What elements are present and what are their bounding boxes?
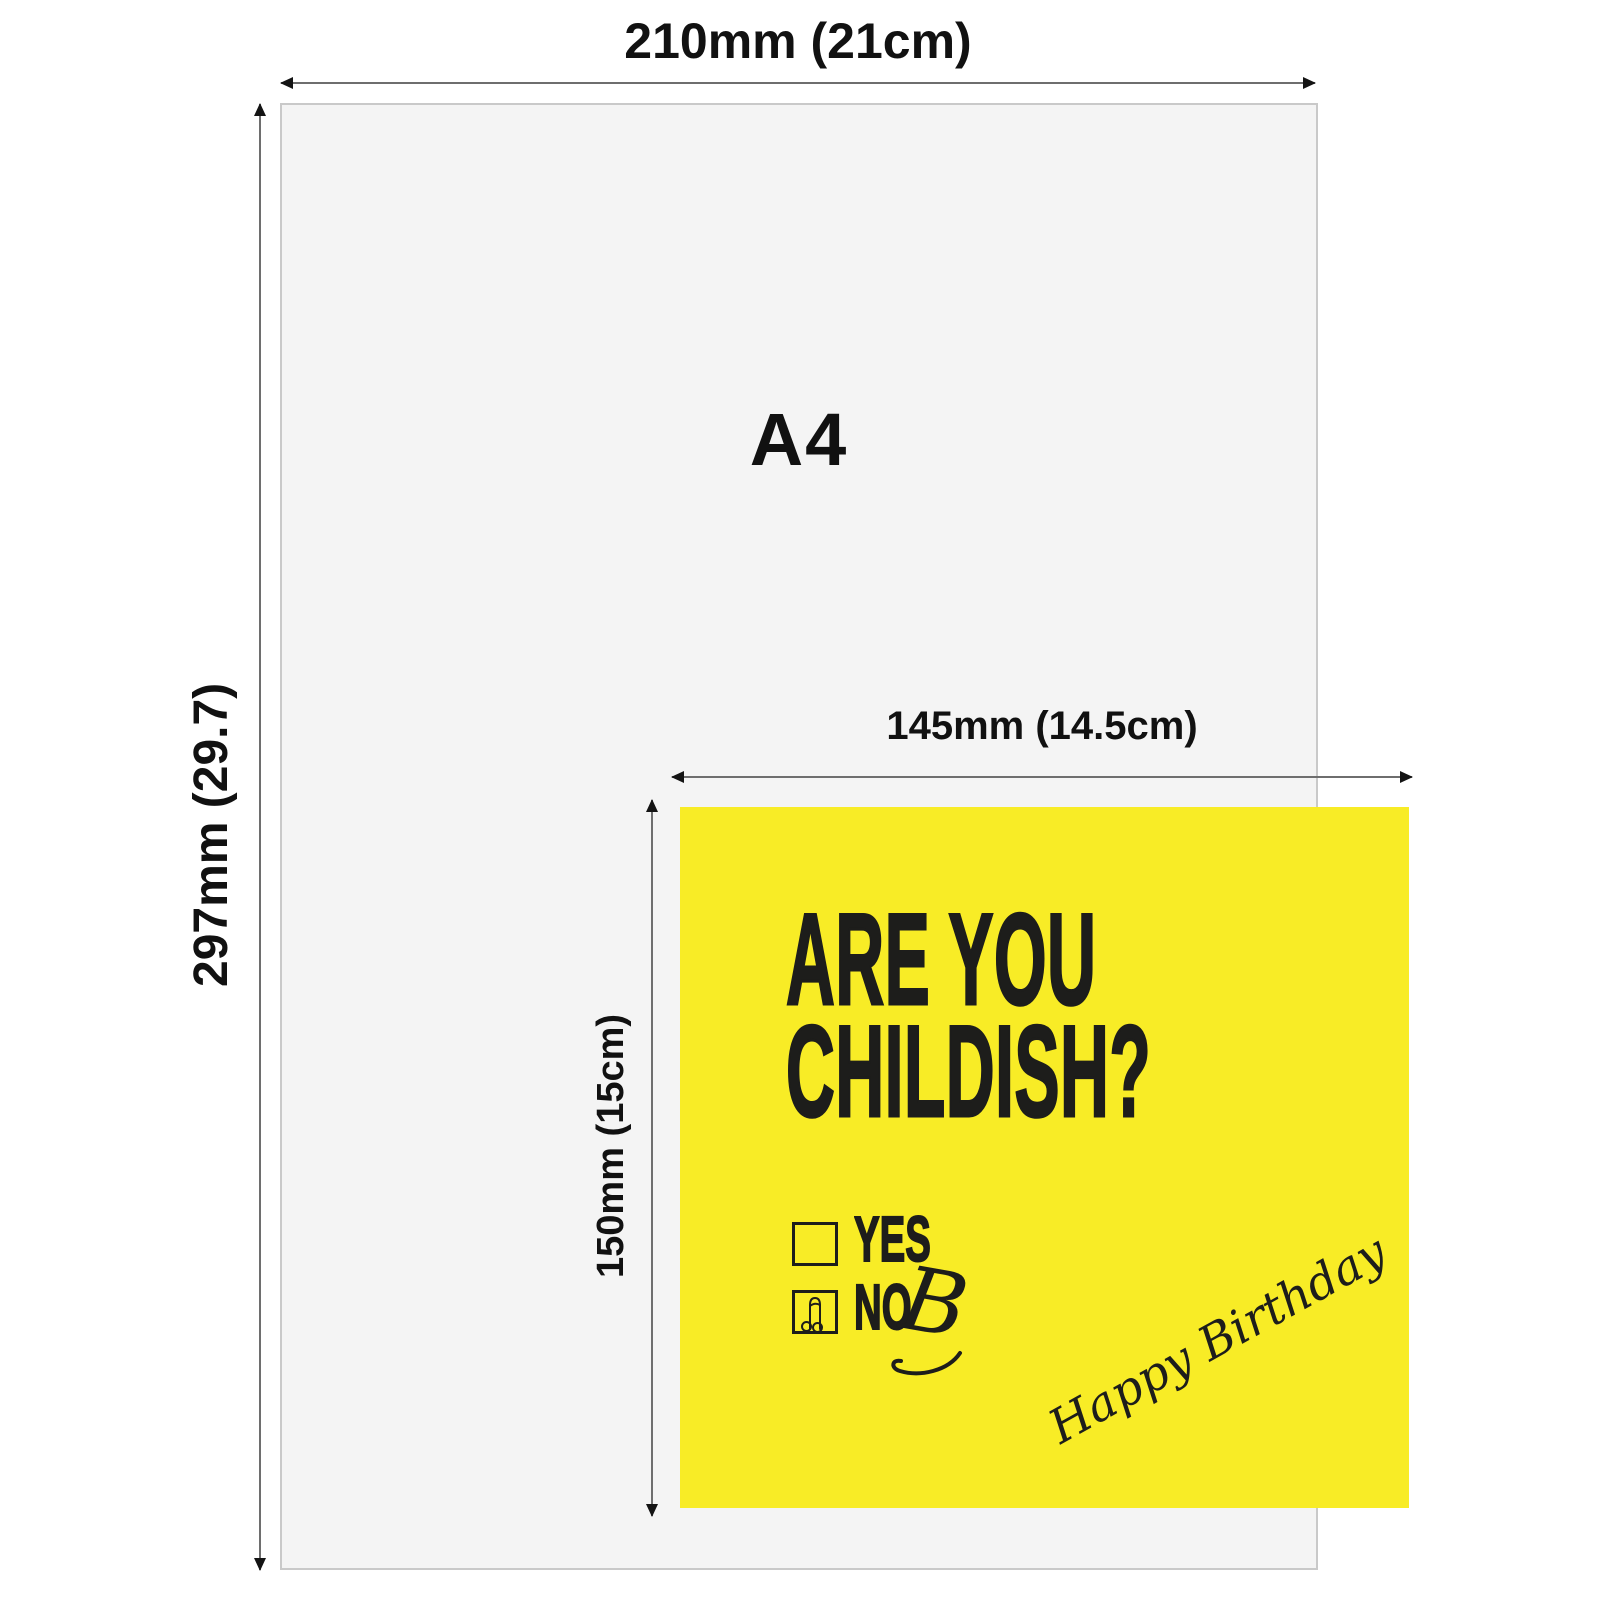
yes-checkbox (792, 1222, 838, 1266)
card-height-dimension-label: 150mm (15cm) (588, 1038, 634, 1278)
arrowhead-left-icon (280, 77, 293, 89)
headline-line-2: CHILDISH? (786, 1015, 1151, 1127)
arrowhead-right-icon (1303, 77, 1316, 89)
willy-doodle-icon (795, 1293, 835, 1331)
card-height-arrow-line (651, 800, 653, 1516)
greeting-card: ARE YOU CHILDISH? YES NO B Happy Birthda… (680, 807, 1409, 1508)
arrowhead-down-icon (646, 1504, 658, 1517)
size-comparison-diagram: 210mm (21cm) 297mm (29.7) A4 145mm (14.5… (0, 0, 1600, 1600)
a4-height-arrow-line (259, 104, 261, 1570)
arrowhead-down-icon (254, 1558, 266, 1571)
a4-height-dimension-label: 297mm (29.7) (184, 687, 240, 987)
arrowhead-up-icon (254, 103, 266, 116)
a4-width-dimension-label: 210mm (21cm) (281, 12, 1315, 70)
b-flourish-icon (886, 1349, 964, 1379)
a4-size-label: A4 (282, 397, 1316, 482)
card-width-dimension-label: 145mm (14.5cm) (672, 704, 1412, 749)
happy-birthday-script: Happy Birthday (1041, 1244, 1364, 1454)
handwritten-b-suffix: B (895, 1254, 974, 1352)
arrowhead-right-icon (1400, 771, 1413, 783)
no-checkbox (792, 1290, 838, 1334)
arrowhead-up-icon (646, 799, 658, 812)
card-width-arrow-line (672, 776, 1412, 778)
card-headline: ARE YOU CHILDISH? (786, 903, 1151, 1127)
arrowhead-left-icon (671, 771, 684, 783)
a4-width-arrow-line (281, 82, 1315, 84)
